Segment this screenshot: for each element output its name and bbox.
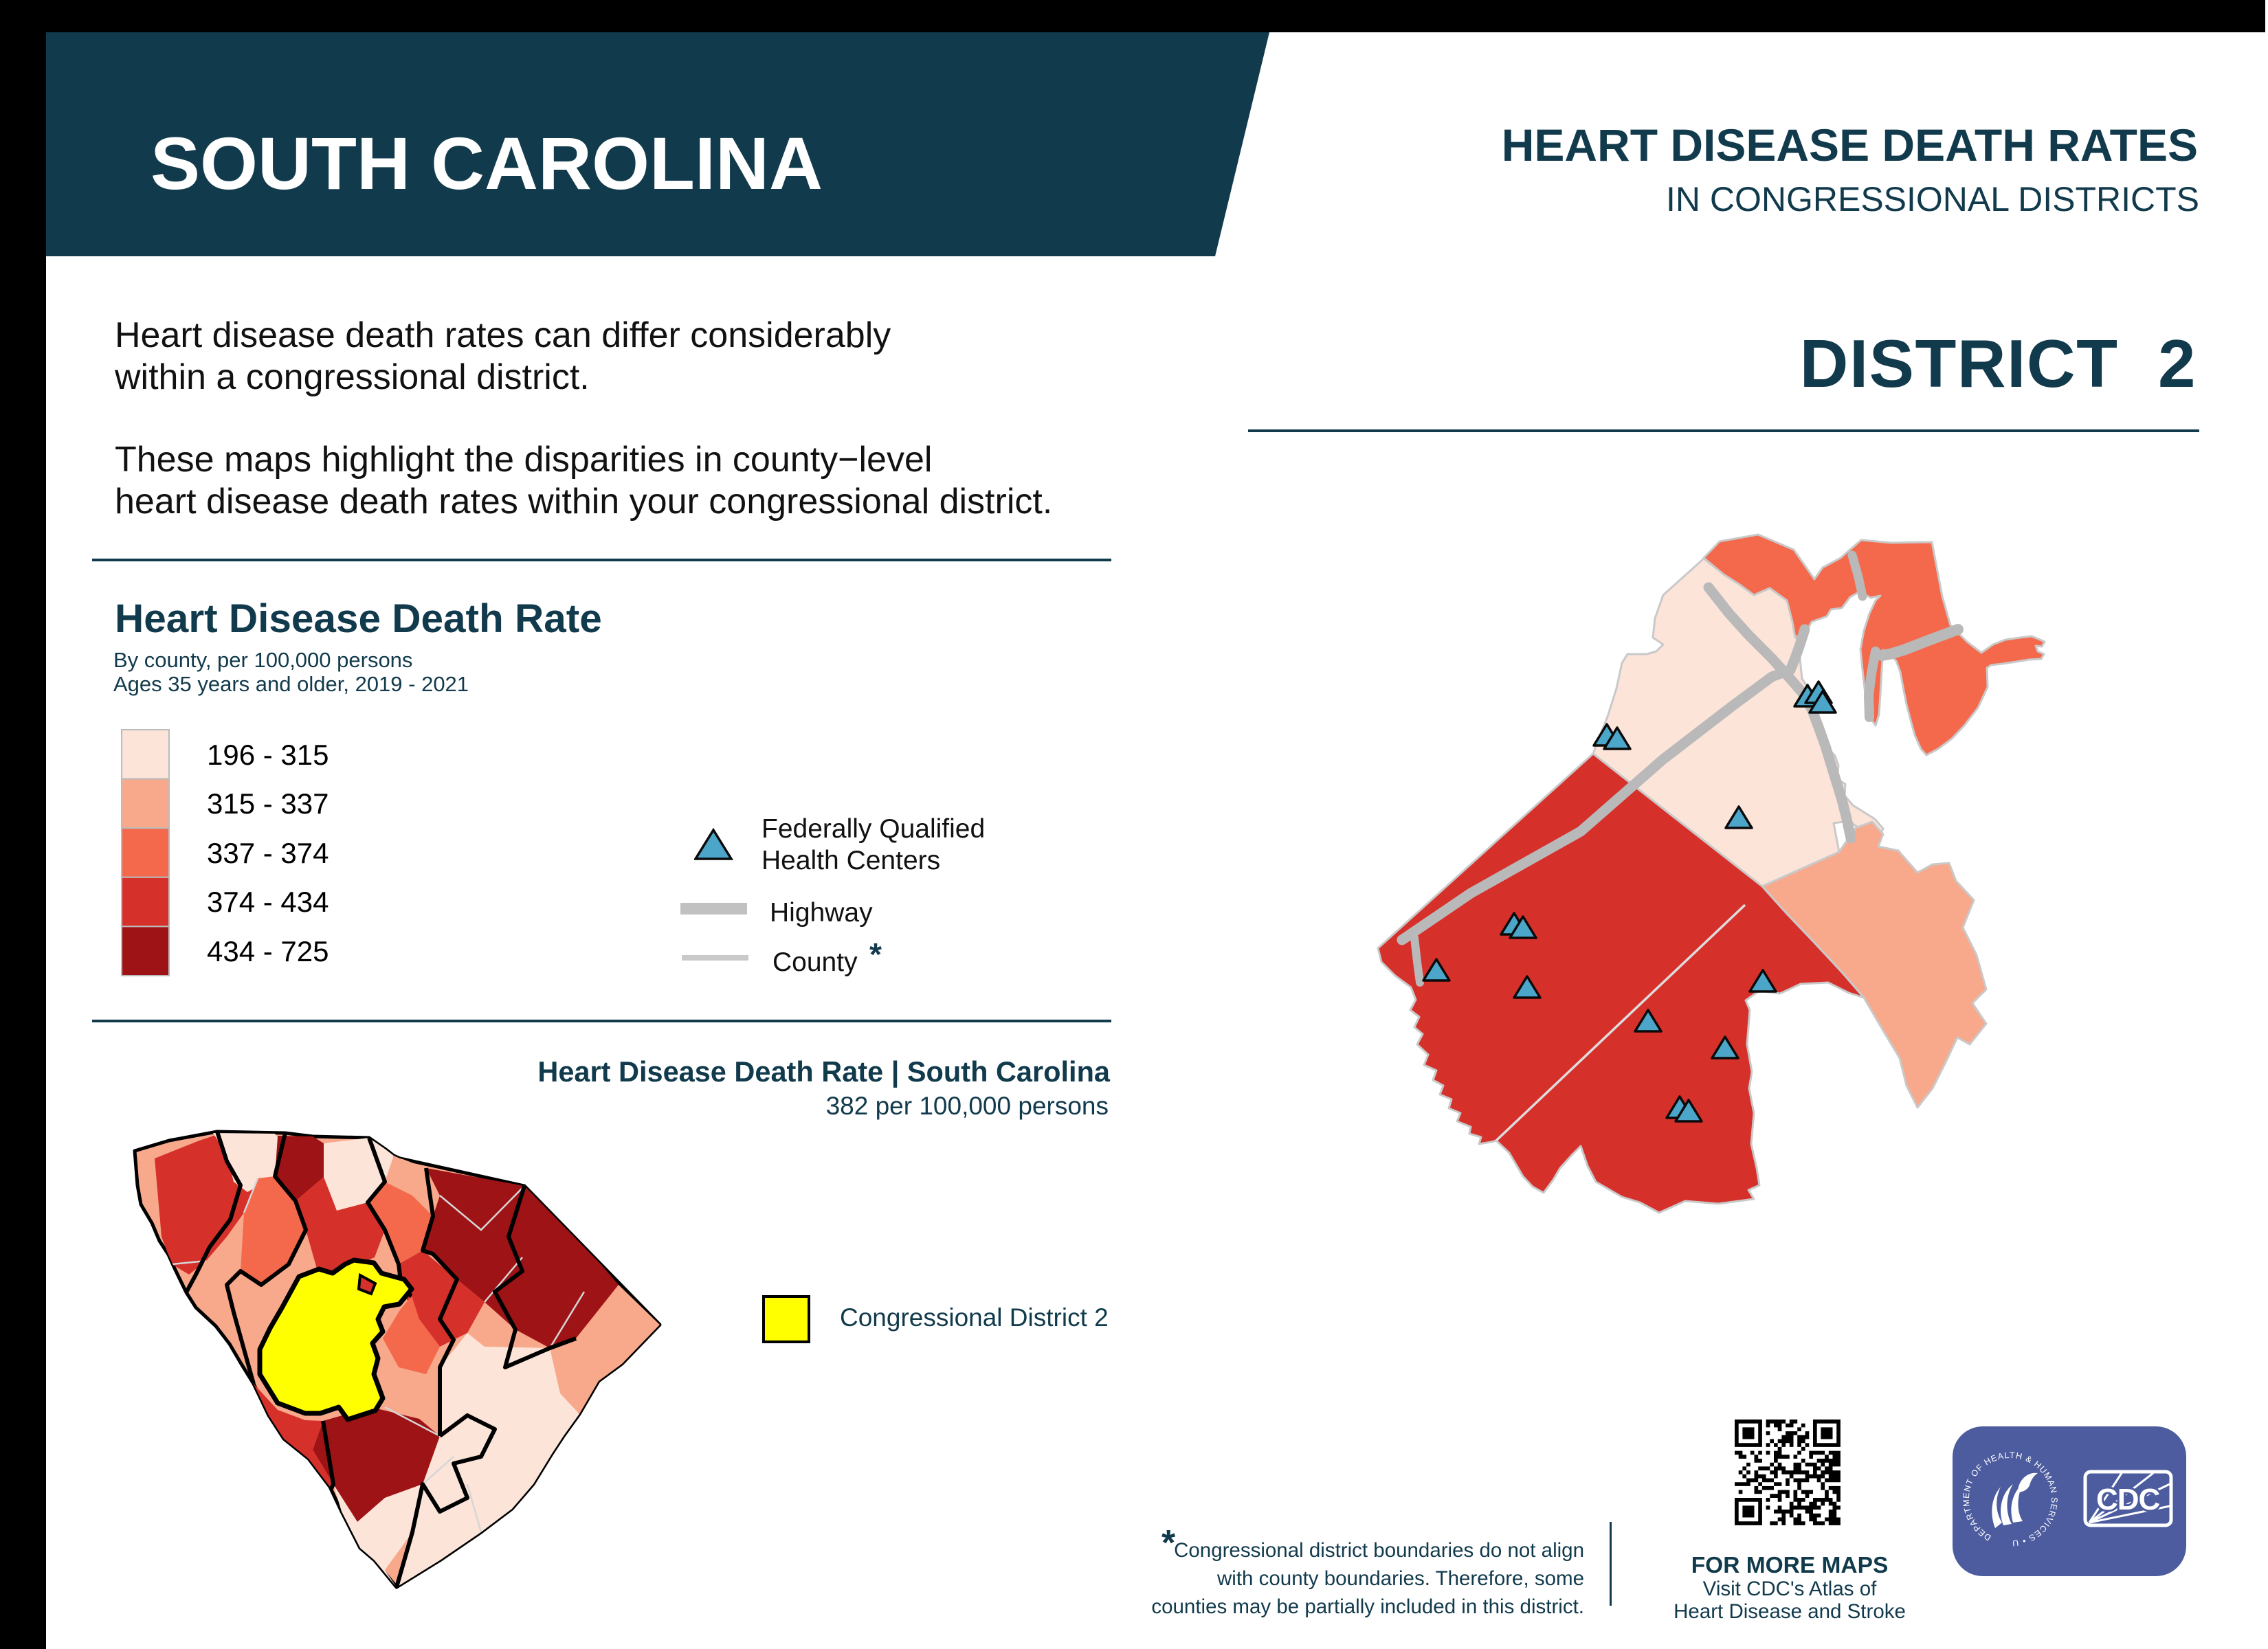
svg-text:CDC: CDC: [2096, 1483, 2160, 1516]
